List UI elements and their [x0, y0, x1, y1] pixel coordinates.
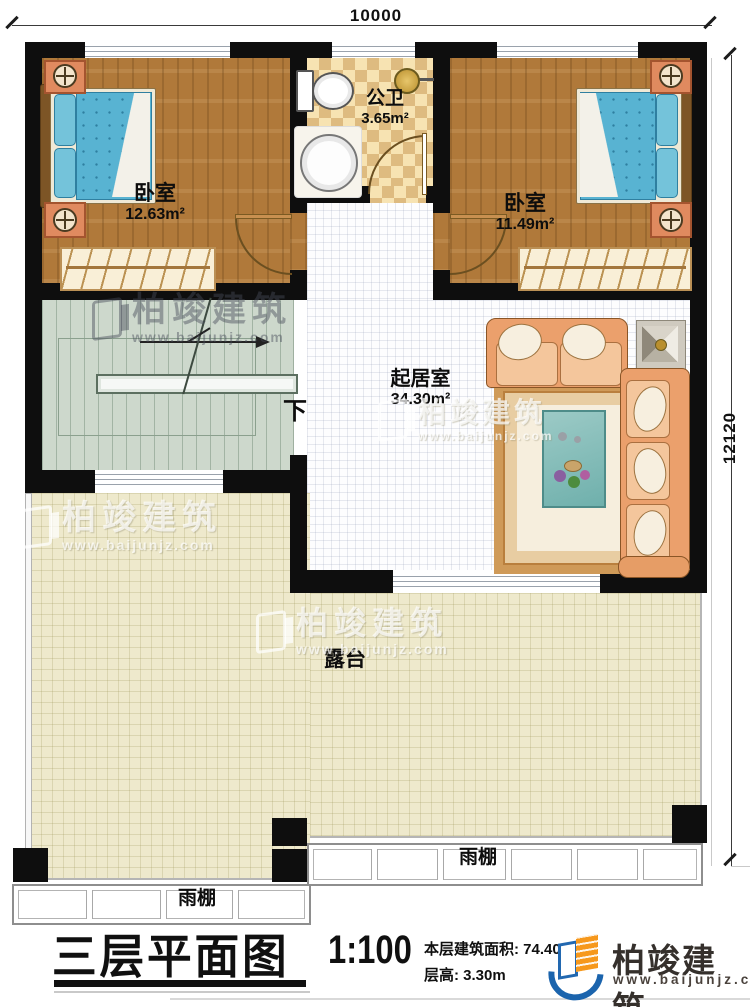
- corner-table: [636, 320, 686, 370]
- sofa-armrest: [618, 556, 690, 578]
- wall: [690, 58, 707, 593]
- living-room-label: 起居室 34.30m²: [358, 368, 483, 409]
- parapet: [25, 493, 32, 879]
- nightstand: [650, 60, 692, 94]
- table-lamp-icon: [655, 339, 667, 351]
- drawing-title: 三层平面图: [52, 918, 290, 987]
- door-threshold: [290, 213, 307, 273]
- lamp-icon: [659, 208, 683, 232]
- lamp-icon: [53, 64, 77, 88]
- vase-icon: [564, 460, 582, 472]
- brand-website: www.baijunjz.com: [613, 972, 750, 987]
- sliding-door: [393, 572, 600, 591]
- lamp-icon: [53, 208, 77, 232]
- brand-name: 柏竣建筑: [612, 934, 750, 1007]
- canopy-divider: [637, 849, 644, 880]
- wardrobe-rod: [66, 266, 210, 269]
- drawing-scale: 1:100: [328, 928, 412, 973]
- wall: [433, 270, 450, 283]
- extension-line: [711, 58, 712, 866]
- canopy-right-label: 雨棚: [442, 847, 514, 869]
- door-threshold: [433, 213, 450, 273]
- stair-direction-arrow: [256, 336, 270, 348]
- column: [272, 849, 307, 882]
- canopy-divider: [86, 890, 93, 919]
- title-underline: [54, 980, 306, 987]
- stair-handrail: [96, 374, 298, 394]
- lamp-icon: [659, 64, 683, 88]
- bathroom-label: 公卫 3.65m²: [335, 88, 435, 127]
- wardrobe: [60, 247, 216, 291]
- window: [497, 42, 638, 58]
- wall: [290, 570, 393, 593]
- nightstand: [650, 202, 692, 238]
- extension-line: [731, 866, 750, 867]
- stairs-down-label: 下: [278, 398, 312, 426]
- pillow: [54, 94, 76, 146]
- right-dimension-label: 12120: [720, 408, 740, 468]
- wall: [290, 270, 307, 283]
- flower-icon: [568, 476, 580, 488]
- top-dimension-label: 10000: [338, 6, 414, 26]
- nightstand: [44, 202, 86, 238]
- table-item: [574, 436, 581, 443]
- door-leaf: [235, 214, 292, 219]
- window: [332, 42, 415, 58]
- dimension-tick: [723, 47, 736, 60]
- window: [95, 470, 223, 493]
- logo-building-orange: [576, 934, 598, 972]
- pillow: [656, 148, 678, 198]
- hallway-floor: [307, 186, 433, 303]
- canopy-left-label: 雨棚: [158, 888, 236, 910]
- brand-logo-icon: [548, 934, 608, 994]
- bed-blanket: [580, 93, 624, 197]
- dimension-tick: [723, 853, 736, 866]
- canopy-divider: [371, 849, 378, 880]
- table-item: [558, 432, 567, 441]
- sink-basin: [300, 134, 358, 192]
- window: [85, 42, 230, 58]
- bedroom-right-label: 卧室 11.49m²: [465, 192, 585, 235]
- pillow: [656, 94, 678, 146]
- column: [272, 818, 307, 846]
- column: [672, 805, 707, 843]
- flower-icon: [554, 470, 566, 482]
- door-leaf: [422, 133, 427, 195]
- terrace-label: 露台: [312, 648, 378, 672]
- nightstand: [44, 60, 86, 94]
- coffee-table: [542, 410, 606, 508]
- canopy-divider: [571, 849, 578, 880]
- floor-height-label: 层高: 3.30m: [424, 964, 506, 985]
- wardrobe: [518, 247, 692, 291]
- bedroom-left-label: 卧室 12.63m²: [95, 182, 215, 225]
- dimension-tick: [5, 16, 18, 29]
- title-underline-thin: [54, 991, 310, 993]
- pillow: [54, 148, 76, 198]
- terrace-floor-left: [30, 493, 310, 880]
- wardrobe-rod: [524, 266, 686, 269]
- dimension-tick: [703, 16, 716, 29]
- flower-icon: [580, 470, 590, 480]
- logo-building-blue: [558, 940, 578, 980]
- column: [13, 848, 48, 882]
- floor-plan: 10000 12120 雨棚: [0, 0, 750, 1007]
- wall: [426, 186, 433, 203]
- terrace-floor-right: [310, 593, 702, 838]
- wall: [433, 58, 450, 213]
